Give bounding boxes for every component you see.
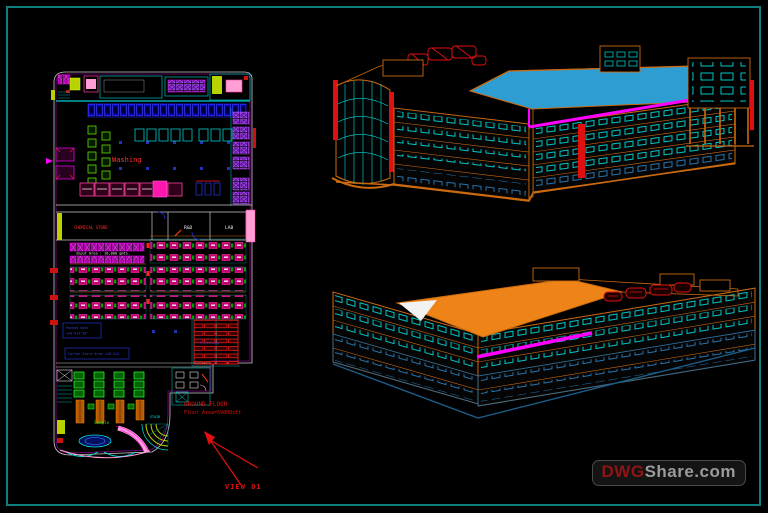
input-area: Input Area : 10,000 gmts.: [70, 243, 144, 263]
finishing-label: Finishing: [200, 341, 219, 345]
penthouse-left: [383, 60, 423, 76]
left-core: [46, 90, 72, 443]
roof-vents-bottom: [604, 283, 691, 301]
red-pylon-right: [750, 80, 754, 130]
plan-title: GROUND FLOOR: [184, 401, 228, 408]
cad-drawing-sheet: Washing: [0, 0, 768, 513]
red-pylon-mid: [389, 92, 394, 172]
note2-text: Carton Store Area =20'X14': [68, 352, 121, 356]
drawing-svg: Washing: [0, 0, 768, 513]
penthouse-rear-right: [700, 280, 730, 291]
finishing-racks: Finishing: [192, 318, 240, 366]
washing-hall: Washing: [56, 120, 242, 197]
watermark-prefix: DWG: [602, 462, 645, 481]
floor-plan: Washing: [46, 72, 262, 491]
sample-label: Sample: [94, 420, 110, 425]
facade-left-wing: [394, 108, 529, 200]
view-arrow: [204, 431, 258, 485]
washing-label: Washing: [112, 156, 142, 164]
plan-area: Floor Area=59800sft: [184, 410, 241, 416]
watermark-badge: DWGShare.com: [592, 460, 746, 486]
view-label: VIEW 01: [225, 483, 262, 491]
annotation-notes: Packed Gmts =20'X14'X8' Carton Store Are…: [63, 323, 177, 359]
room-label-rnd: R&D: [184, 225, 193, 231]
left-washer-units: [56, 148, 74, 179]
penthouse-rear-left: [533, 268, 579, 281]
red-pylon-left: [333, 80, 338, 140]
corridor-rooms: CHEMICAL STORE R&D LAB: [56, 205, 255, 242]
top-service-rooms: [58, 74, 250, 100]
watermark-suffix: Share.com: [645, 462, 736, 481]
note1-line2: =20'X14'X8': [66, 332, 88, 336]
stair-label: STAIR: [150, 415, 161, 419]
stair-tower-right: [600, 46, 640, 72]
input-area-label: Input Area : 10,000 gmts.: [76, 252, 130, 256]
room-label-chemical-store: CHEMICAL STORE: [74, 225, 108, 230]
washing-machine-band: [88, 104, 246, 117]
room-label-lab: LAB: [225, 225, 234, 231]
axon-view-top: [332, 46, 754, 201]
note1-line1: Packed Gmts: [66, 326, 88, 330]
axon-view-bottom: [333, 268, 755, 418]
service-block: [172, 368, 210, 405]
red-pylon-front: [578, 124, 585, 178]
